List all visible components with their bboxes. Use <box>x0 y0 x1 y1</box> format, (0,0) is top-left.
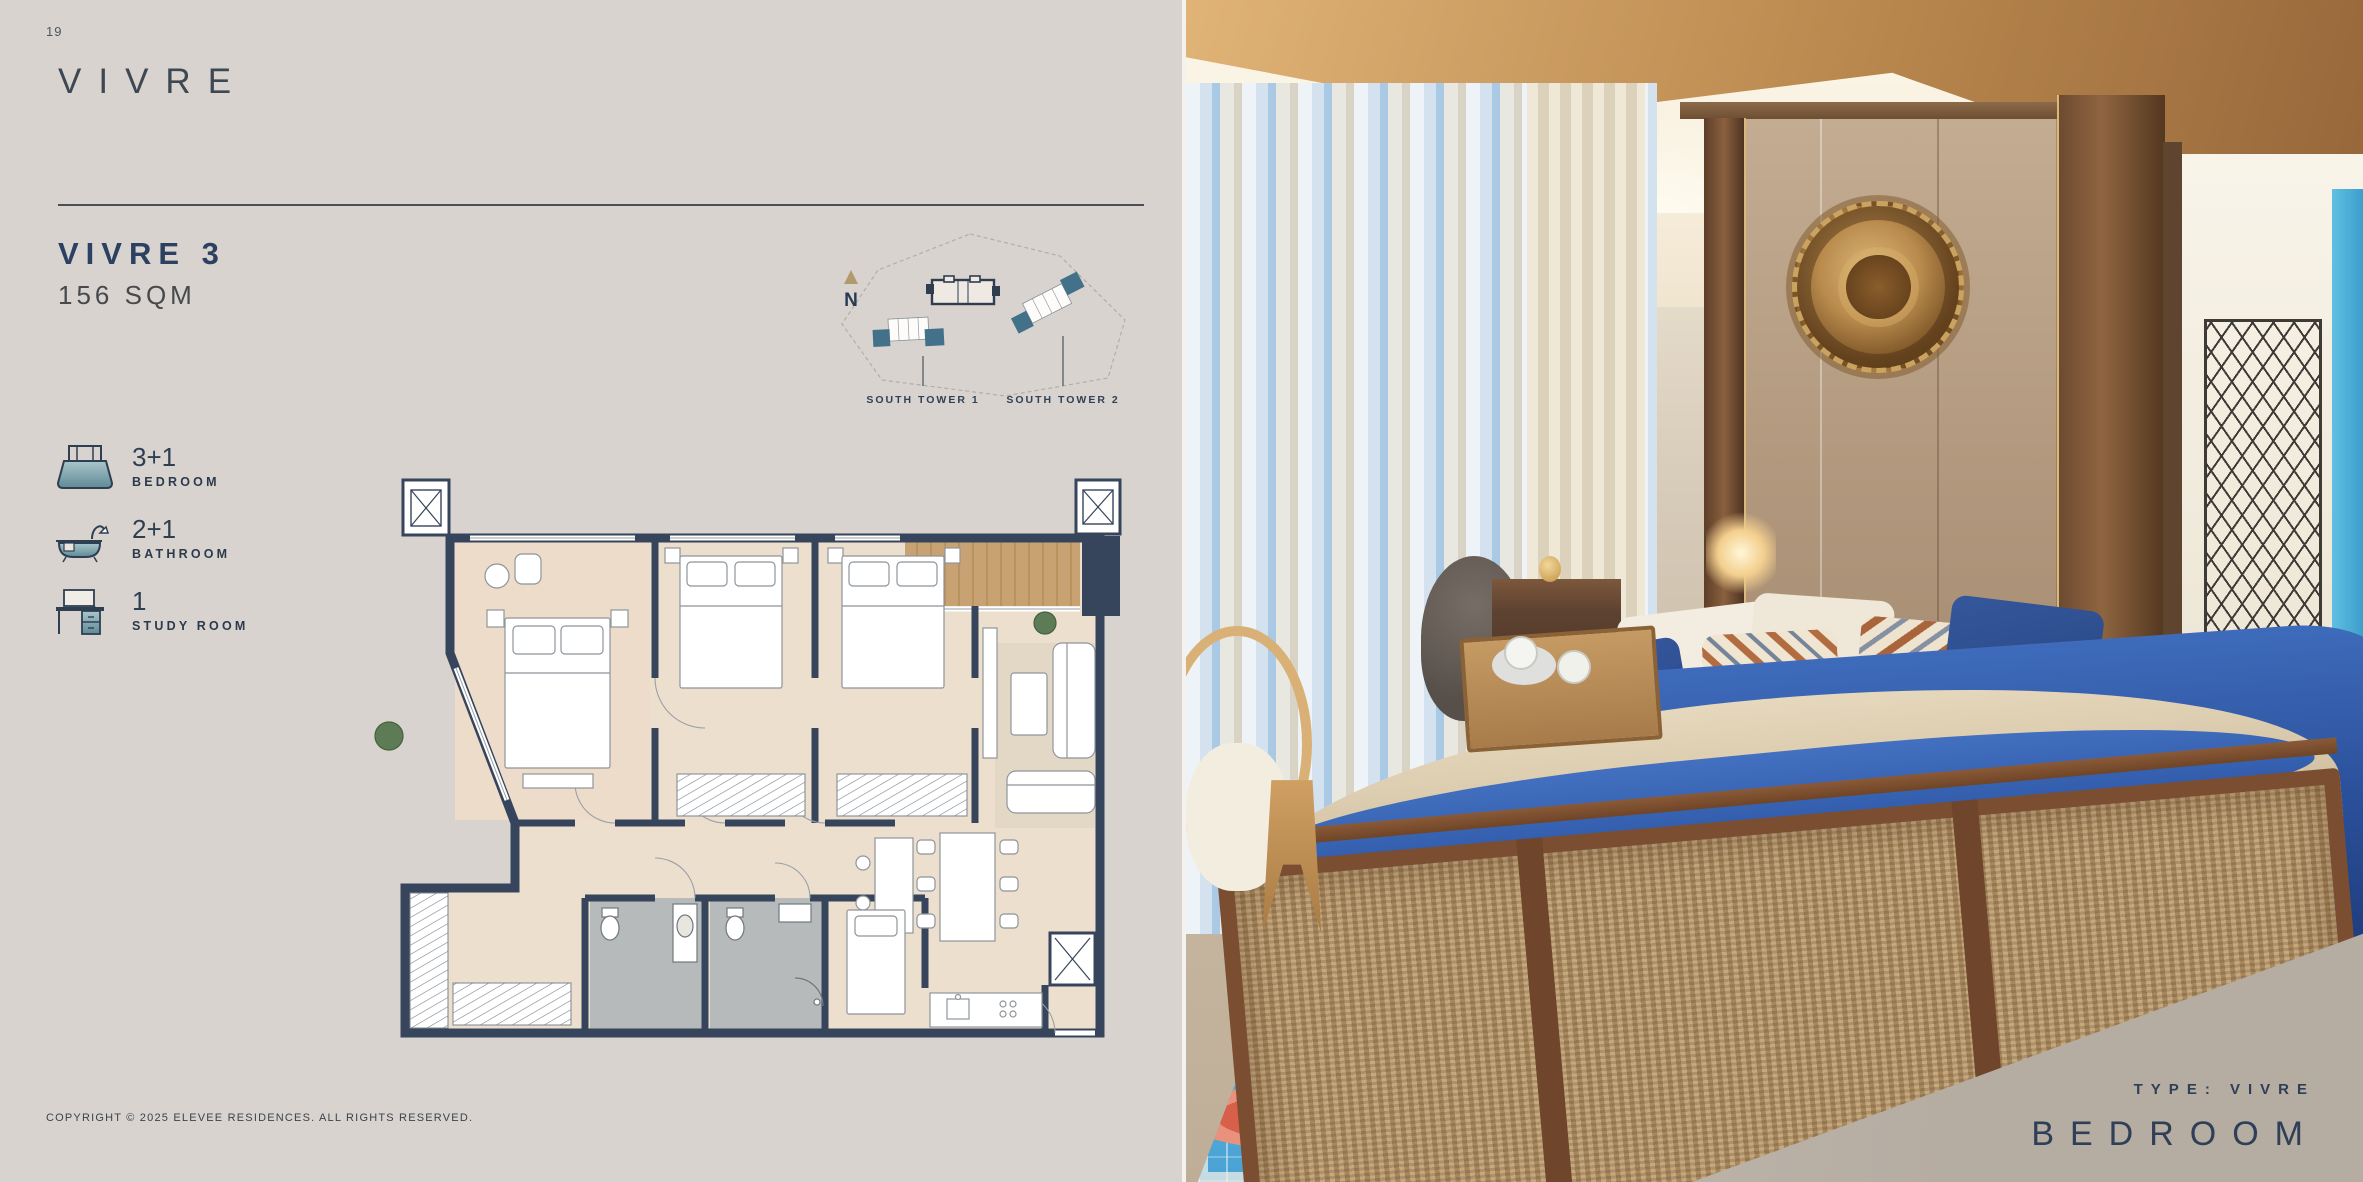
plant <box>375 722 403 750</box>
bed-icon <box>52 443 118 495</box>
type-label: TYPE: VIVRE <box>2134 1081 2315 1098</box>
left-page: 19 VIVRE VIVRE 3 156 SQM <box>0 0 1182 1182</box>
study-label: STUDY ROOM <box>132 619 249 633</box>
site-map: SOUTH TOWER 1 SOUTH TOWER 2 N <box>820 228 1150 428</box>
north-arrow-icon: N <box>844 270 858 311</box>
south-tower-1-footprint <box>872 316 944 349</box>
north-tower-footprint <box>926 276 1000 304</box>
feature-text: 1 STUDY ROOM <box>132 587 249 633</box>
brochure-spread: 19 VIVRE VIVRE 3 156 SQM <box>0 0 2363 1182</box>
wall-sconce-left <box>1706 508 1776 598</box>
bathroom-count: 2+1 <box>132 515 230 544</box>
page-number: 19 <box>46 24 62 39</box>
copyright-text: COPYRIGHT © 2025 ELEVEE RESIDENCES. ALL … <box>46 1112 473 1124</box>
bedroom-count: 3+1 <box>132 443 220 472</box>
teacup <box>1557 650 1591 684</box>
site-boundary <box>842 234 1125 396</box>
south-tower-2-footprint <box>1006 271 1090 333</box>
feature-list: 3+1 BEDROOM 2+1 BATHROOM <box>52 443 249 659</box>
gold-vase <box>1539 556 1561 582</box>
feature-bedroom: 3+1 BEDROOM <box>52 443 249 495</box>
desk-icon <box>52 587 118 639</box>
elevator-shaft-left <box>403 480 449 535</box>
service-shaft <box>1050 933 1095 985</box>
tower1-label: SOUTH TOWER 1 <box>866 394 979 406</box>
bathroom-label: BATHROOM <box>132 547 230 561</box>
feature-study: 1 STUDY ROOM <box>52 587 249 639</box>
unit-area: 156 SQM <box>58 280 196 311</box>
wood-cornice <box>1680 102 2080 119</box>
north-label: N <box>844 290 858 311</box>
page-title: VIVRE <box>58 62 248 102</box>
feature-text: 3+1 BEDROOM <box>132 443 220 489</box>
unit-name: VIVRE 3 <box>58 236 226 272</box>
bedroom-photo: TYPE: VIVRE BEDROOM <box>1186 0 2363 1182</box>
room-label: BEDROOM <box>2031 1115 2319 1154</box>
bathtub-icon <box>52 515 118 567</box>
feature-bathroom: 2+1 BATHROOM <box>52 515 249 567</box>
tower2-label: SOUTH TOWER 2 <box>1006 394 1119 406</box>
study-room-furniture <box>847 910 905 1014</box>
floor-plan <box>355 478 1185 1043</box>
elevator-shaft-right <box>1076 480 1120 616</box>
divider-rule <box>58 204 1144 206</box>
teacup <box>1504 636 1538 670</box>
study-count: 1 <box>132 587 249 616</box>
bronze-medallion <box>1792 201 1964 373</box>
bedroom-label: BEDROOM <box>132 475 220 489</box>
feature-text: 2+1 BATHROOM <box>132 515 230 561</box>
kitchen-furniture <box>930 993 1042 1027</box>
page-photo-divider <box>1182 0 1186 1182</box>
breakfast-tray <box>1459 626 1663 754</box>
